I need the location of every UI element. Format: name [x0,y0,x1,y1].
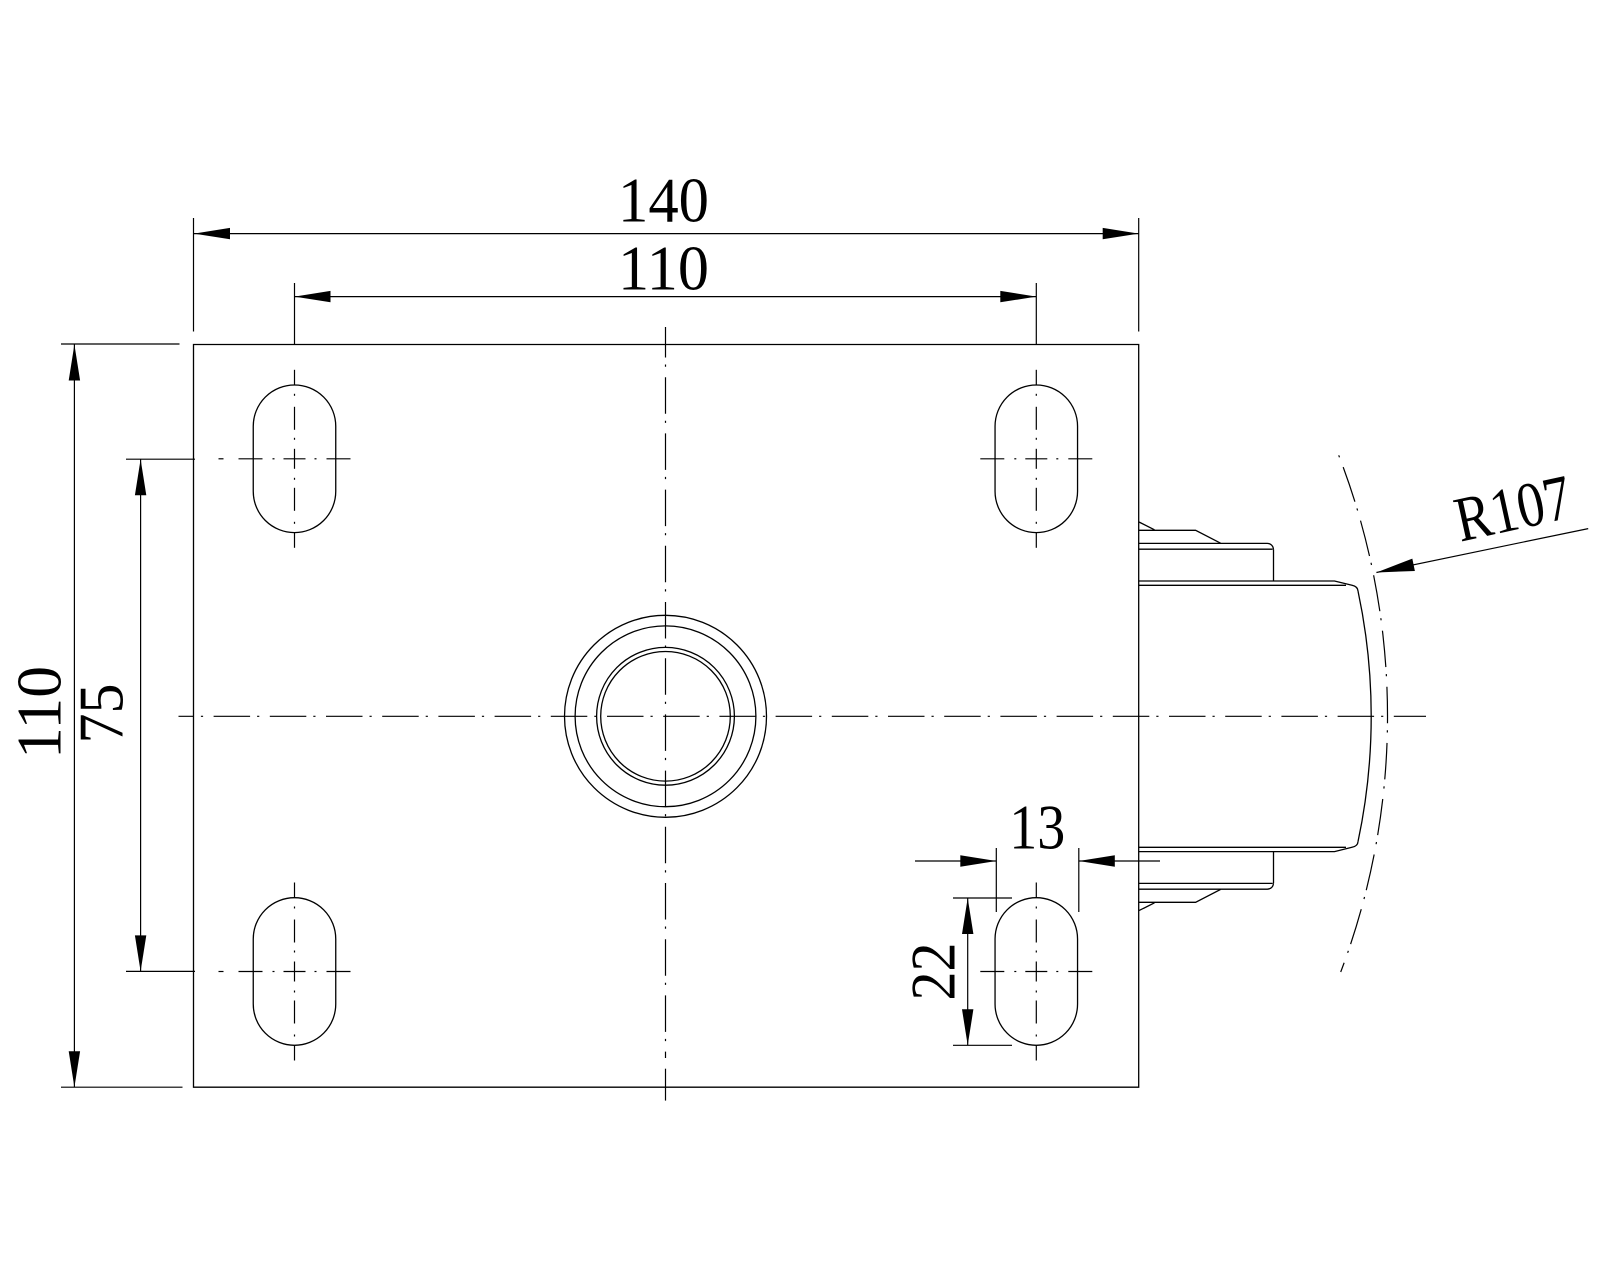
svg-text:R107: R107 [1448,461,1577,555]
svg-text:22: 22 [898,943,969,1001]
svg-text:110: 110 [4,666,75,759]
svg-text:140: 140 [618,165,709,236]
svg-text:110: 110 [618,233,709,304]
svg-text:75: 75 [66,684,137,744]
svg-text:13: 13 [1009,792,1065,863]
